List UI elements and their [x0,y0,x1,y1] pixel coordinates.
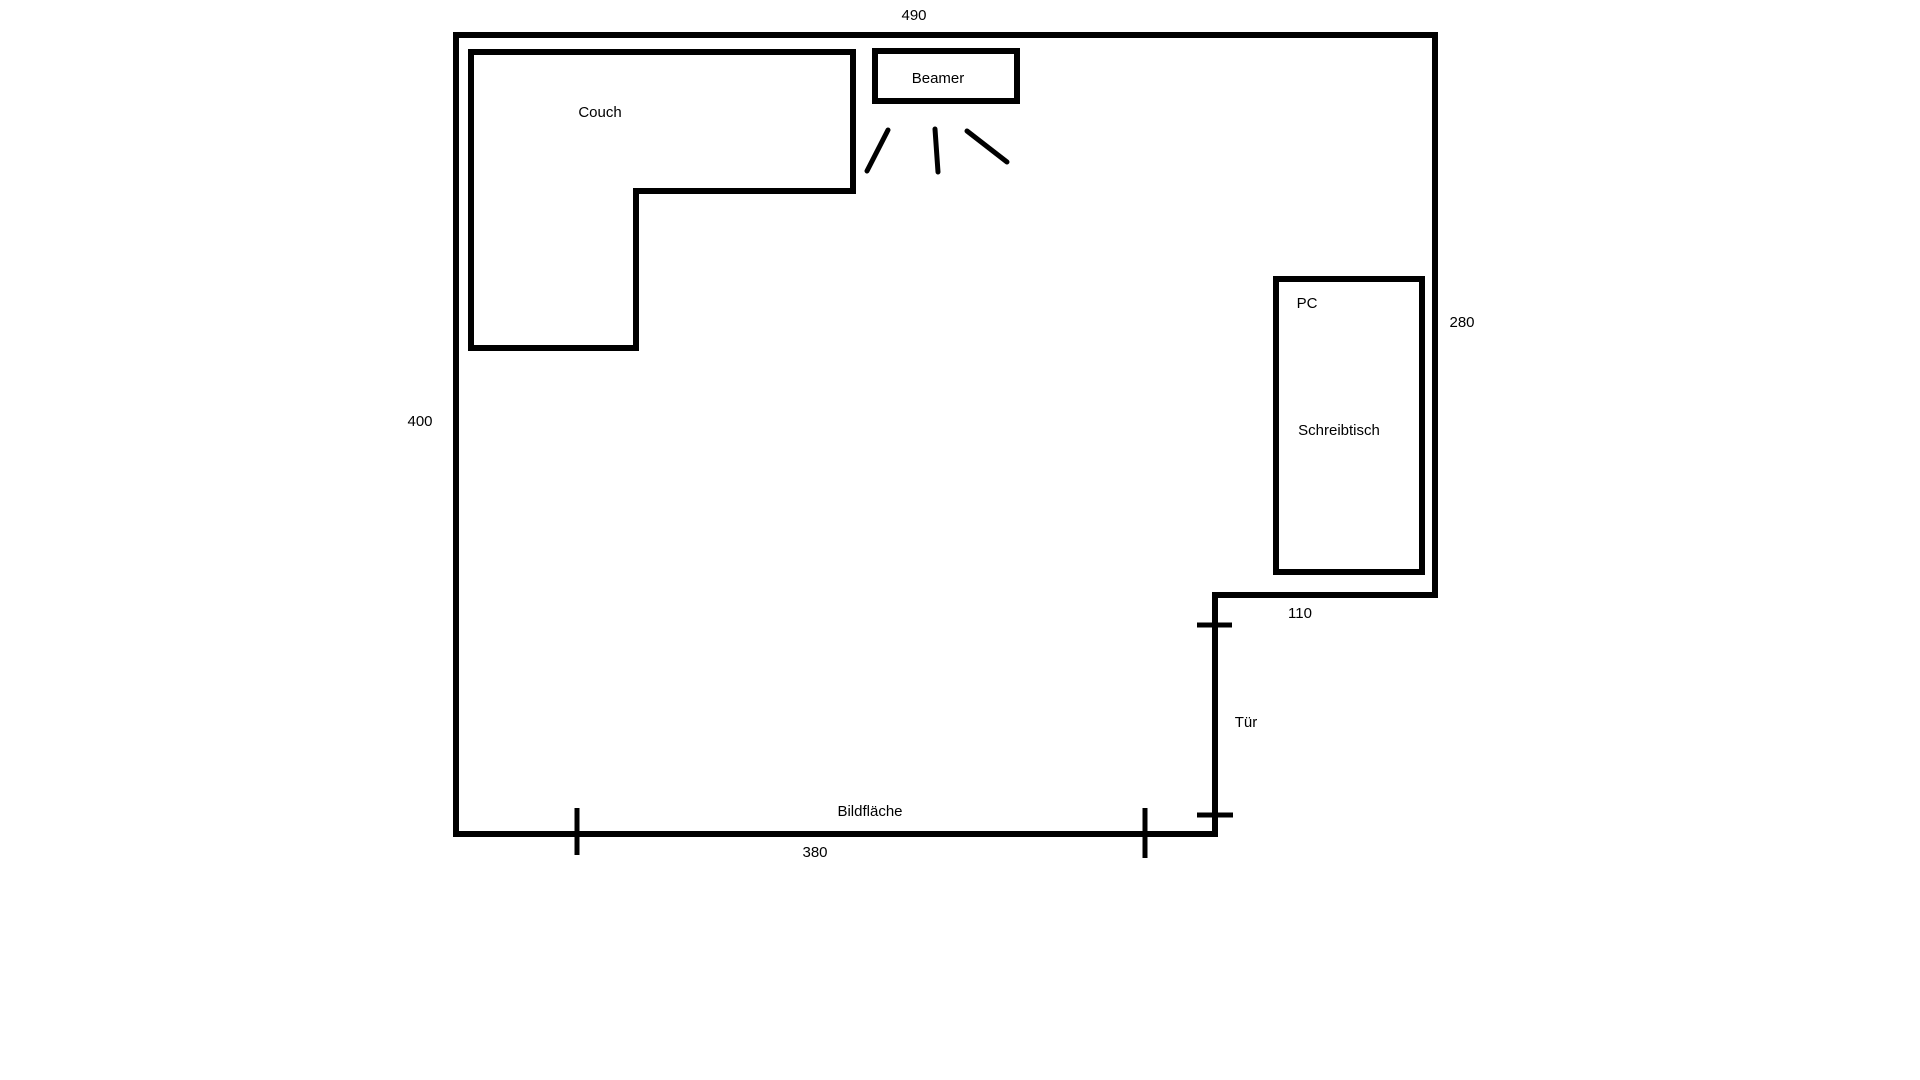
desk-label: Schreibtisch [1298,422,1380,439]
couch-label: Couch [578,104,621,121]
pc-label: PC [1297,295,1318,312]
dim-top-label: 490 [901,7,926,24]
room-outline [456,35,1435,834]
dim-niche-label: 110 [1288,605,1312,622]
dim-right-label: 280 [1449,314,1474,331]
projector-ray-left [867,130,888,171]
beamer-label: Beamer [912,70,965,87]
projector-ray-middle [935,129,938,172]
door-label: Tür [1235,714,1258,731]
dim-left-label: 400 [407,413,432,430]
floor-plan-canvas: 490 400 280 110 380 Couch Beamer PC Schr… [0,0,1920,1080]
screen-label: Bildfläche [837,803,902,820]
floor-plan-drawing: 490 400 280 110 380 Couch Beamer PC Schr… [0,0,1920,1080]
couch-shape [471,52,853,348]
dim-screen-label: 380 [802,844,827,861]
projector-ray-right [967,131,1007,162]
